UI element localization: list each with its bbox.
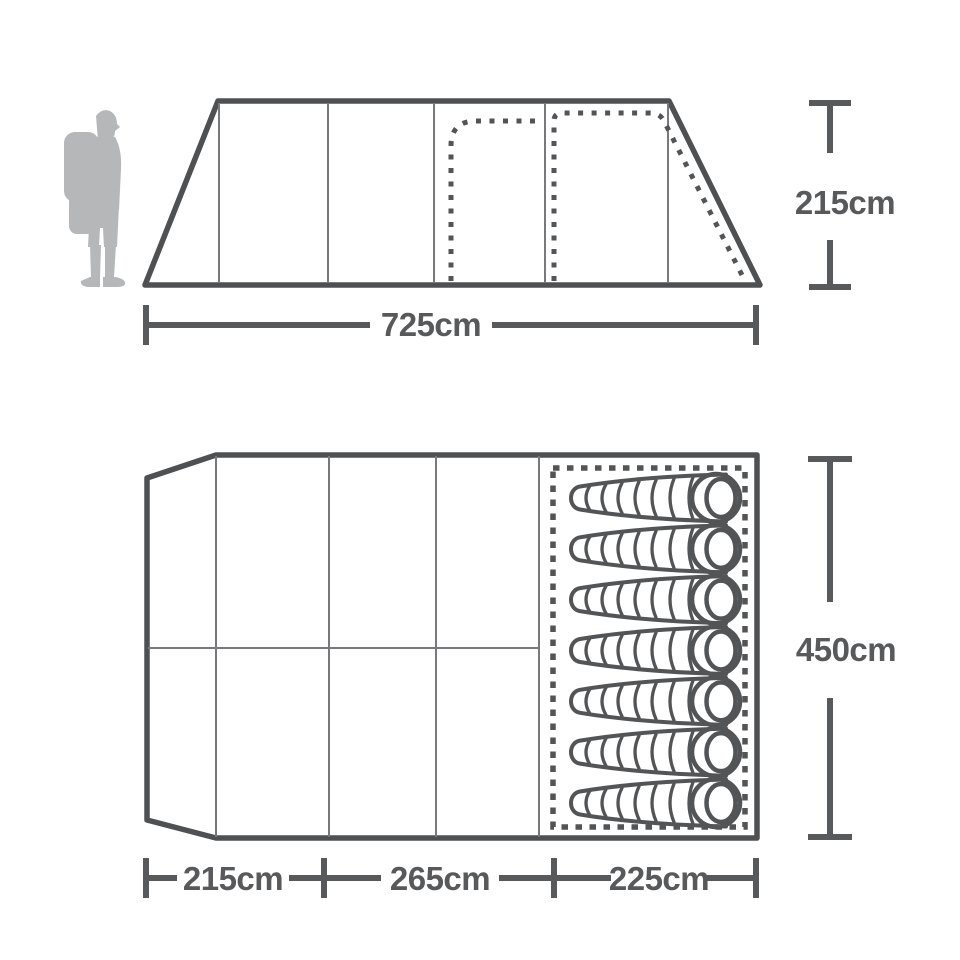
sleeping-bag-icon [571,576,740,624]
tent-side-view [145,101,760,285]
sleeping-bag-icon [571,474,740,522]
tent-floor-plan [147,455,757,838]
sleeping-bag-icon [571,525,740,573]
sleeping-bag-icon [571,626,740,674]
section-dimensions: 215cm 265cm 225cm [146,858,756,898]
depth-dimension-label: 450cm [796,631,896,668]
depth-dimension: 450cm [796,459,896,837]
section-dimension-label-porch: 215cm [183,860,283,897]
height-dimension-label: 215cm [795,184,895,221]
sleeping-bags-layer [571,474,740,827]
width-dimension-label: 725cm [381,306,481,343]
inner-bedroom-dashed-outline [451,121,543,281]
section-dimension-label-living: 265cm [390,860,490,897]
tent-dimensions-diagram: 215cm 725cm 450cm 215cm 265cm [0,0,960,960]
width-dimension: 725cm [146,305,756,345]
sleeping-bag-icon [571,728,740,776]
height-dimension: 215cm [795,103,895,287]
section-dimension-label-bedroom: 225cm [609,860,709,897]
hiker-silhouette-icon [64,110,125,287]
sleeping-bag-icon [571,779,740,827]
sleeping-bag-icon [571,677,740,725]
